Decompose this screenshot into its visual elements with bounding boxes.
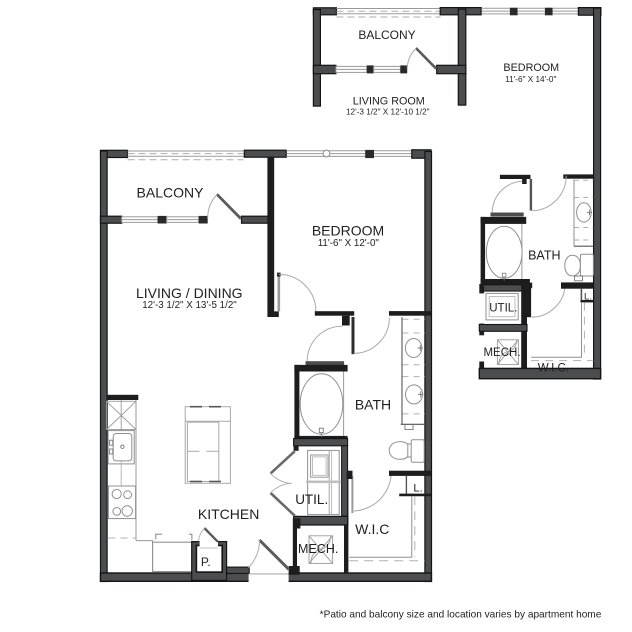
svg-text:BATH: BATH (528, 248, 560, 262)
svg-text:MECH.: MECH. (483, 347, 520, 359)
svg-text:L.: L. (413, 482, 422, 494)
svg-text:W.I.C.: W.I.C. (538, 362, 569, 374)
svg-text:L.: L. (584, 292, 592, 303)
svg-text:12'-3 1/2" X 12'-10 1/2": 12'-3 1/2" X 12'-10 1/2" (346, 108, 430, 117)
svg-text:UTIL.: UTIL. (295, 492, 328, 507)
svg-text:LIVING / DINING: LIVING / DINING (136, 285, 243, 301)
svg-text:W.I.C: W.I.C (355, 521, 389, 537)
svg-text:P.: P. (201, 555, 211, 569)
svg-text:BEDROOM: BEDROOM (503, 62, 559, 74)
svg-text:BALCONY: BALCONY (137, 185, 205, 201)
svg-text:LIVING ROOM: LIVING ROOM (353, 95, 425, 107)
svg-text:KITCHEN: KITCHEN (198, 506, 259, 522)
svg-text:BALCONY: BALCONY (358, 28, 415, 42)
svg-text:12'-3 1/2" X 13'-5 1/2": 12'-3 1/2" X 13'-5 1/2" (142, 300, 237, 311)
svg-text:11'-6" X 14'-0": 11'-6" X 14'-0" (505, 75, 556, 84)
svg-text:UTIL.: UTIL. (489, 303, 517, 315)
svg-text:11'-6" X 12'-0": 11'-6" X 12'-0" (318, 238, 380, 249)
svg-text:BEDROOM: BEDROOM (312, 223, 384, 239)
svg-text:MECH.: MECH. (298, 542, 338, 556)
svg-text:BATH: BATH (355, 397, 391, 413)
svg-text:*Patio and balcony size and lo: *Patio and balcony size and location var… (320, 610, 602, 621)
